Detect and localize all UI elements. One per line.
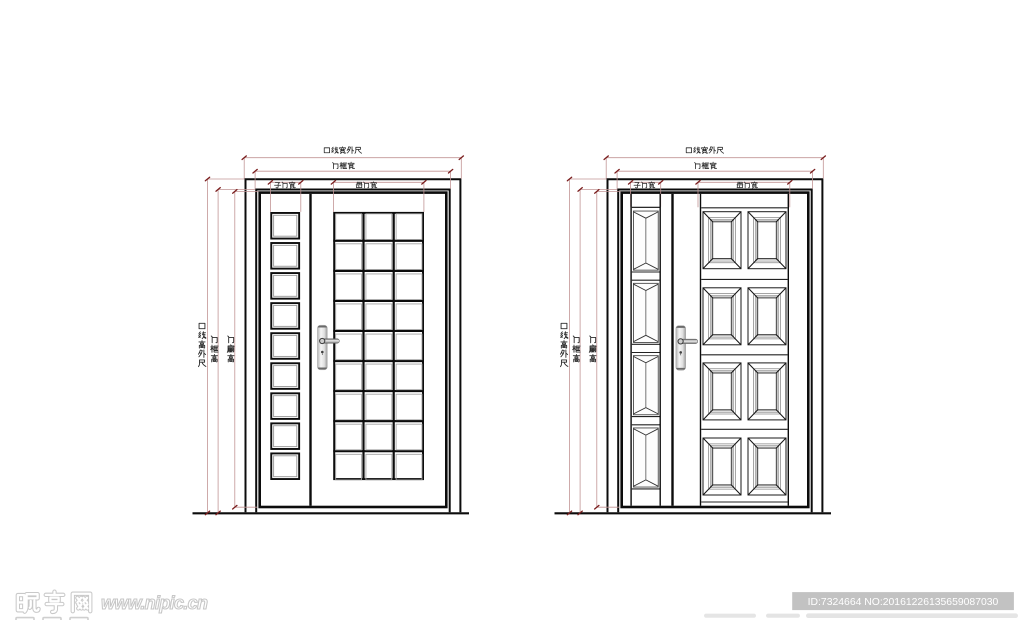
svg-text:www.nipic.cn: www.nipic.cn [101,593,208,613]
svg-text:ID:7324664 NO:2016122613565908: ID:7324664 NO:20161226135659087030 [808,597,999,608]
